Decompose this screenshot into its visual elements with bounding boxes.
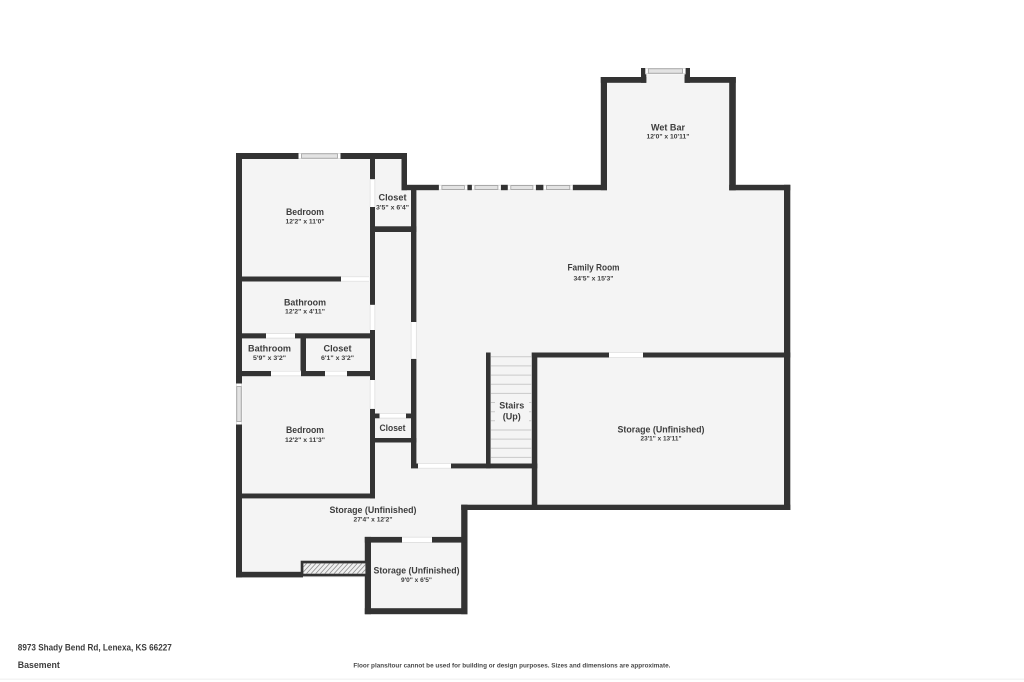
svg-text:12'2" x 11'3": 12'2" x 11'3" (285, 437, 325, 444)
svg-text:Bathroom: Bathroom (248, 344, 291, 354)
svg-text:Wet Bar: Wet Bar (651, 122, 685, 132)
svg-text:Floor plans/tour cannot be use: Floor plans/tour cannot be used for buil… (353, 663, 670, 670)
svg-text:Storage (Unfinished): Storage (Unfinished) (618, 424, 705, 434)
svg-text:8973 Shady Bend Rd, Lenexa, KS: 8973 Shady Bend Rd, Lenexa, KS 66227 (18, 643, 172, 654)
svg-text:Closet: Closet (379, 192, 407, 202)
svg-text:12'2" x 4'11": 12'2" x 4'11" (285, 309, 325, 316)
svg-text:5'9" x 3'2": 5'9" x 3'2" (253, 355, 286, 362)
svg-text:Basement: Basement (18, 660, 61, 671)
svg-text:23'1" x 13'11": 23'1" x 13'11" (641, 436, 682, 443)
svg-text:Bedroom: Bedroom (286, 207, 324, 217)
svg-text:Closet: Closet (380, 423, 406, 433)
svg-text:6'1" x 3'2": 6'1" x 3'2" (321, 355, 354, 362)
svg-text:12'0" x 10'11": 12'0" x 10'11" (647, 134, 690, 141)
svg-text:34'5" x 15'3": 34'5" x 15'3" (574, 275, 614, 282)
svg-text:Storage (Unfinished): Storage (Unfinished) (330, 505, 417, 515)
svg-text:Closet: Closet (324, 344, 352, 354)
svg-text:Bedroom: Bedroom (286, 425, 324, 435)
svg-text:Storage (Unfinished): Storage (Unfinished) (374, 566, 460, 576)
svg-text:Bathroom: Bathroom (284, 297, 326, 307)
svg-text:12'2" x 11'0": 12'2" x 11'0" (286, 219, 325, 226)
svg-text:27'4" x 12'2": 27'4" x 12'2" (354, 517, 393, 524)
svg-text:(Up): (Up) (503, 411, 521, 421)
svg-text:Stairs: Stairs (499, 400, 524, 410)
svg-text:9'0" x 6'5": 9'0" x 6'5" (401, 577, 432, 584)
svg-text:Family Room: Family Room (568, 263, 620, 273)
svg-text:3'5" x 6'4": 3'5" x 6'4" (376, 204, 409, 211)
